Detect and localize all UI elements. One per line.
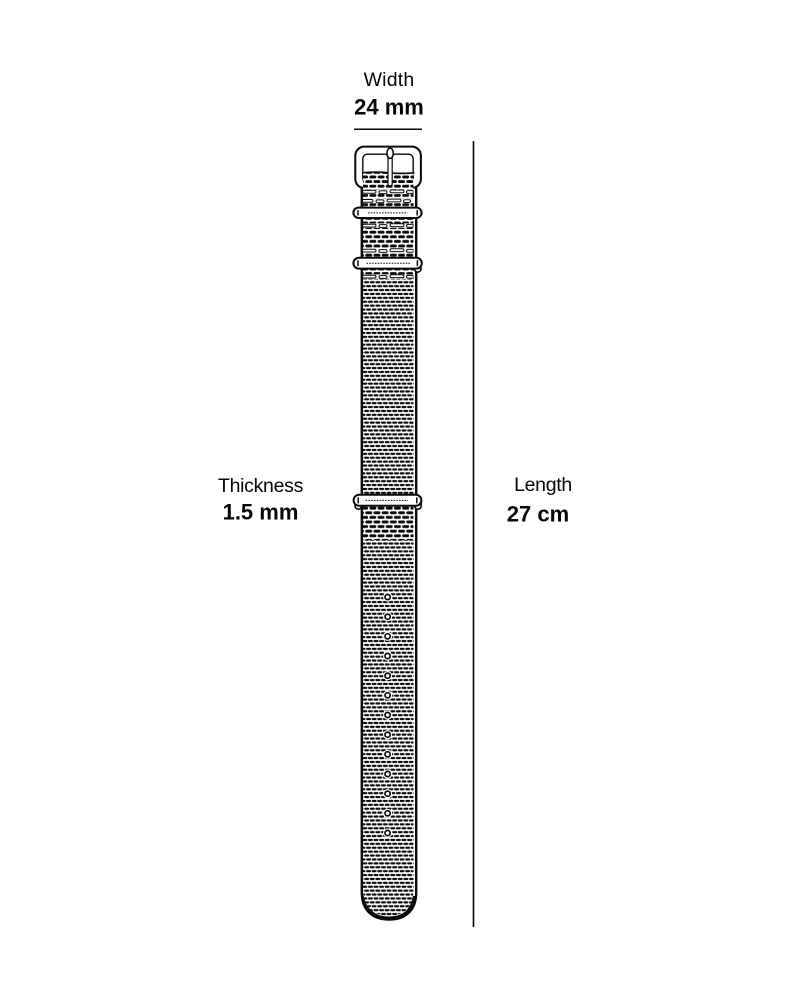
svg-text:Length: Length [514, 474, 572, 496]
svg-text:Width: Width [364, 69, 415, 91]
svg-text:Thickness: Thickness [218, 475, 304, 497]
svg-text:24 mm: 24 mm [354, 95, 424, 120]
svg-text:1.5 mm: 1.5 mm [223, 500, 299, 525]
svg-text:27 cm: 27 cm [507, 502, 569, 527]
